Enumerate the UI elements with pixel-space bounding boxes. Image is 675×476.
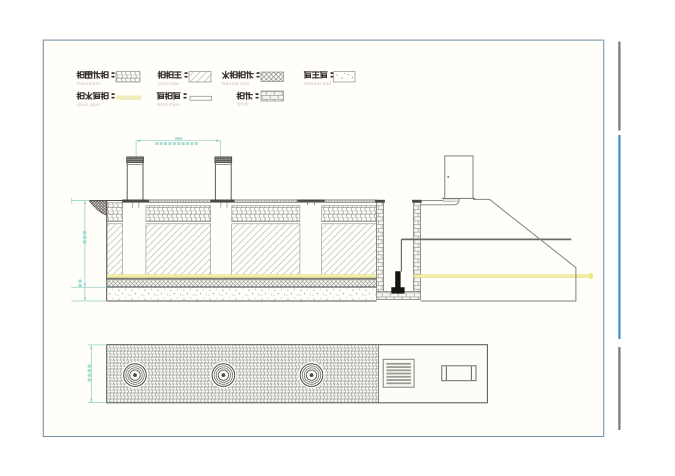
svg-text:Concrete: Concrete bbox=[158, 81, 179, 87]
svg-text:Brick: Brick bbox=[237, 102, 249, 108]
svg-text:drain pipe: drain pipe bbox=[77, 102, 100, 108]
svg-text:Wire Pipe: Wire Pipe bbox=[157, 102, 180, 108]
svg-text:Natural Soil: Natural Soil bbox=[304, 81, 331, 87]
svg-text:Pavement: Pavement bbox=[77, 81, 101, 87]
svg-text:Natural Soil: Natural Soil bbox=[222, 81, 249, 87]
